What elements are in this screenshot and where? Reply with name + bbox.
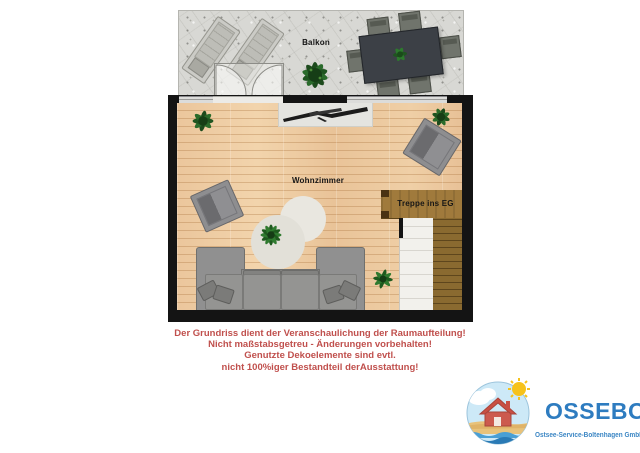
disclaimer-text: Der Grundriss dient der Veranschaulichun… <box>0 328 640 373</box>
table-plant-icon <box>389 43 411 65</box>
dining-chair <box>439 35 462 59</box>
sofa-seat-cushion <box>281 274 319 310</box>
armchair-seat <box>196 186 237 226</box>
armchair <box>190 179 245 233</box>
potted-plant-icon <box>187 105 219 137</box>
living-room-floor: Wohnzimmer <box>177 103 462 310</box>
disclaimer-line: Genutzte Dekoelemente sind evtl. <box>0 350 640 361</box>
disclaimer-line: Der Grundriss dient der Veranschaulichun… <box>0 328 640 339</box>
living-room-label: Wohnzimmer <box>268 176 368 185</box>
living-room-walls: Wohnzimmer <box>168 95 473 322</box>
potted-plant-icon <box>369 265 397 293</box>
logo-emblem-icon <box>463 376 545 448</box>
dining-group <box>342 6 463 101</box>
balcony-label: Balkon <box>291 38 341 47</box>
logo-wordmark: OSSEBO <box>545 398 640 425</box>
armchair-seat <box>409 124 455 169</box>
staircase-landing <box>399 218 434 310</box>
logo-subtitle: Ostsee-Service-Boltenhagen GmbH <box>535 432 640 439</box>
sofa-seat-cushion <box>243 274 281 310</box>
stair-post <box>381 190 389 197</box>
rug-plant-icon <box>256 220 286 250</box>
company-logo: OSSEBO Ostsee-Service-Boltenhagen GmbH <box>463 376 637 448</box>
staircase-upper-run: Treppe ins EG <box>381 190 462 219</box>
tv-board <box>278 103 373 127</box>
disclaimer-line: nicht 100%iger Bestandteil derAusstattun… <box>0 362 640 373</box>
floorplan-page: Balkon <box>0 0 640 453</box>
disclaimer-line: Nicht maßstabsgetreu - Änderungen vorbeh… <box>0 339 640 350</box>
staircase-down-run <box>433 218 462 310</box>
stair-post <box>381 211 389 218</box>
corner-sofa <box>196 247 363 310</box>
potted-plant-icon <box>295 55 335 95</box>
tv-icon <box>279 103 372 126</box>
stairs-label: Treppe ins EG <box>389 199 462 208</box>
balcony-area: Balkon <box>178 10 464 97</box>
stair-wall-stub <box>399 218 403 238</box>
balcony-door-icon <box>214 63 284 96</box>
